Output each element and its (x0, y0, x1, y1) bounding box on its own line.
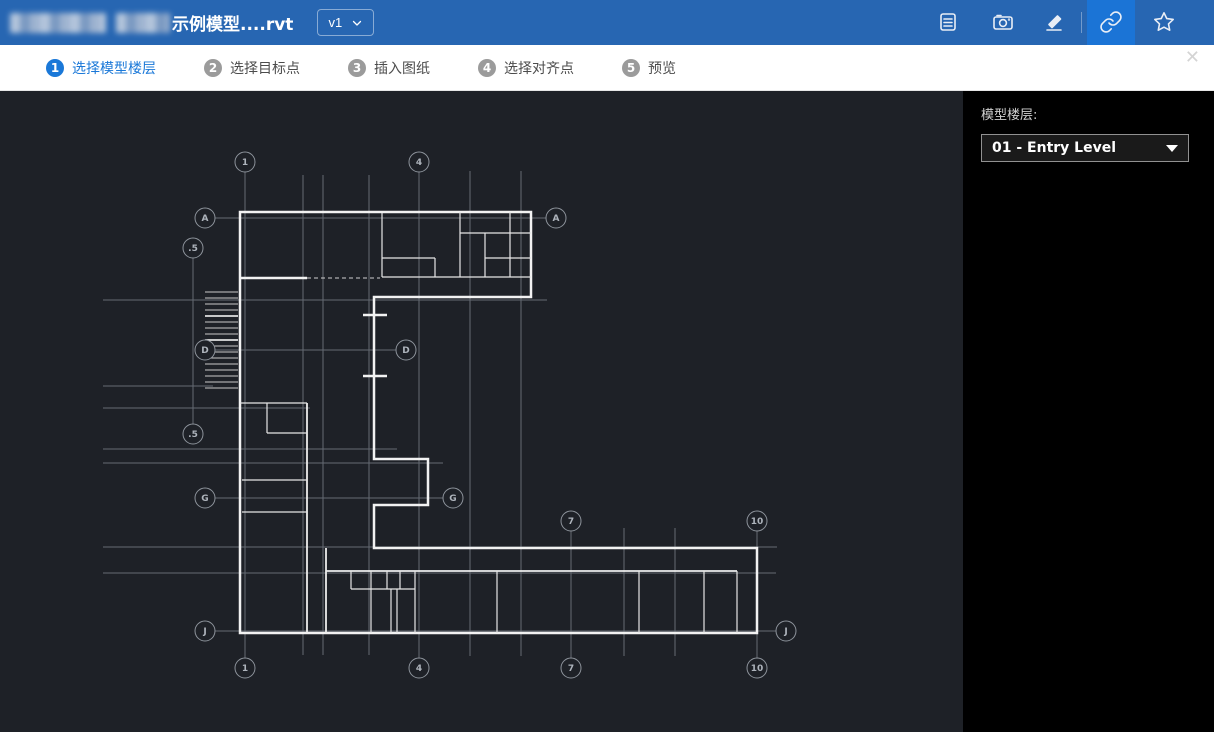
icon-separator (1081, 12, 1082, 33)
step-number-badge: 5 (622, 59, 640, 77)
right-panel: 模型楼层: 01 - Entry Level (963, 91, 1214, 732)
level-dropdown[interactable]: 01 - Entry Level (981, 134, 1189, 162)
dropdown-caret-icon (1166, 145, 1178, 152)
pen-icon[interactable] (1042, 10, 1066, 34)
wizard-step-4[interactable]: 4选择对齐点 (478, 58, 574, 78)
grid-bubble-label: 7 (568, 517, 574, 527)
step-label: 选择对齐点 (504, 58, 574, 78)
wizard-step-2[interactable]: 2选择目标点 (204, 58, 300, 78)
top-bar: 示例模型....rvt v1 (0, 0, 1214, 45)
grid-bubble-label: .5 (188, 244, 198, 254)
step-label: 选择模型楼层 (72, 58, 156, 78)
floorplan-drawing: 14AA.5DD.5GG710JJ14710 (0, 91, 963, 732)
wizard-step-3[interactable]: 3插入图纸 (348, 58, 430, 78)
grid-bubble-label: J (783, 627, 787, 637)
grid-bubble-label: 10 (751, 664, 764, 674)
stair-hatch (205, 292, 238, 388)
version-label: v1 (328, 15, 342, 30)
model-canvas[interactable]: 14AA.5DD.5GG710JJ14710 (0, 91, 963, 732)
document-title: 示例模型....rvt (172, 10, 293, 35)
grid-bubble-label: A (553, 214, 560, 224)
step-number-badge: 2 (204, 59, 222, 77)
step-number-badge: 3 (348, 59, 366, 77)
grid-bubble-label: A (202, 214, 209, 224)
walls-outer (240, 212, 757, 633)
version-dropdown-button[interactable]: v1 (317, 9, 374, 36)
chevron-down-icon (351, 17, 363, 29)
grid-bubble-label: 10 (751, 517, 764, 527)
grid-bubble-label: 4 (416, 664, 422, 674)
wizard-step-bar: 1选择模型楼层2选择目标点3插入图纸4选择对齐点5预览 (0, 45, 1214, 91)
step-number-badge: 4 (478, 59, 496, 77)
step-label: 预览 (648, 58, 676, 78)
link-icon[interactable] (1099, 10, 1123, 34)
level-dropdown-value: 01 - Entry Level (992, 140, 1166, 156)
redacted-title-block (116, 13, 170, 33)
grid-bubble-label: D (201, 346, 208, 356)
level-select-label: 模型楼层: (981, 104, 1037, 123)
grid-bubble-label: .5 (188, 430, 198, 440)
camera-icon[interactable] (991, 10, 1015, 34)
notes-icon[interactable] (936, 10, 960, 34)
grid-bubble-label: G (201, 494, 208, 504)
document-title-wrap: 示例模型....rvt v1 (10, 9, 374, 36)
wizard-step-5[interactable]: 5预览 (622, 58, 676, 78)
walls-interior (240, 212, 737, 633)
topbar-icon-group (914, 0, 1214, 45)
grid-bubble-label: J (202, 627, 206, 637)
grid-bubble-label: 1 (242, 664, 248, 674)
grid-bubble-label: 7 (568, 664, 574, 674)
grid-bubble-label: 1 (242, 158, 248, 168)
step-number-badge: 1 (46, 59, 64, 77)
grid-bubble-label: D (402, 346, 409, 356)
step-label: 选择目标点 (230, 58, 300, 78)
grid-bubble-label: 4 (416, 158, 422, 168)
grid-lines (103, 171, 777, 658)
grid-bubble-label: G (449, 494, 456, 504)
close-icon[interactable]: ✕ (1185, 49, 1200, 67)
redacted-title-block (10, 13, 106, 33)
link-tool-active-cell[interactable] (1087, 0, 1135, 45)
wizard-step-1[interactable]: 1选择模型楼层 (46, 58, 156, 78)
star-icon[interactable] (1152, 10, 1176, 34)
step-label: 插入图纸 (374, 58, 430, 78)
